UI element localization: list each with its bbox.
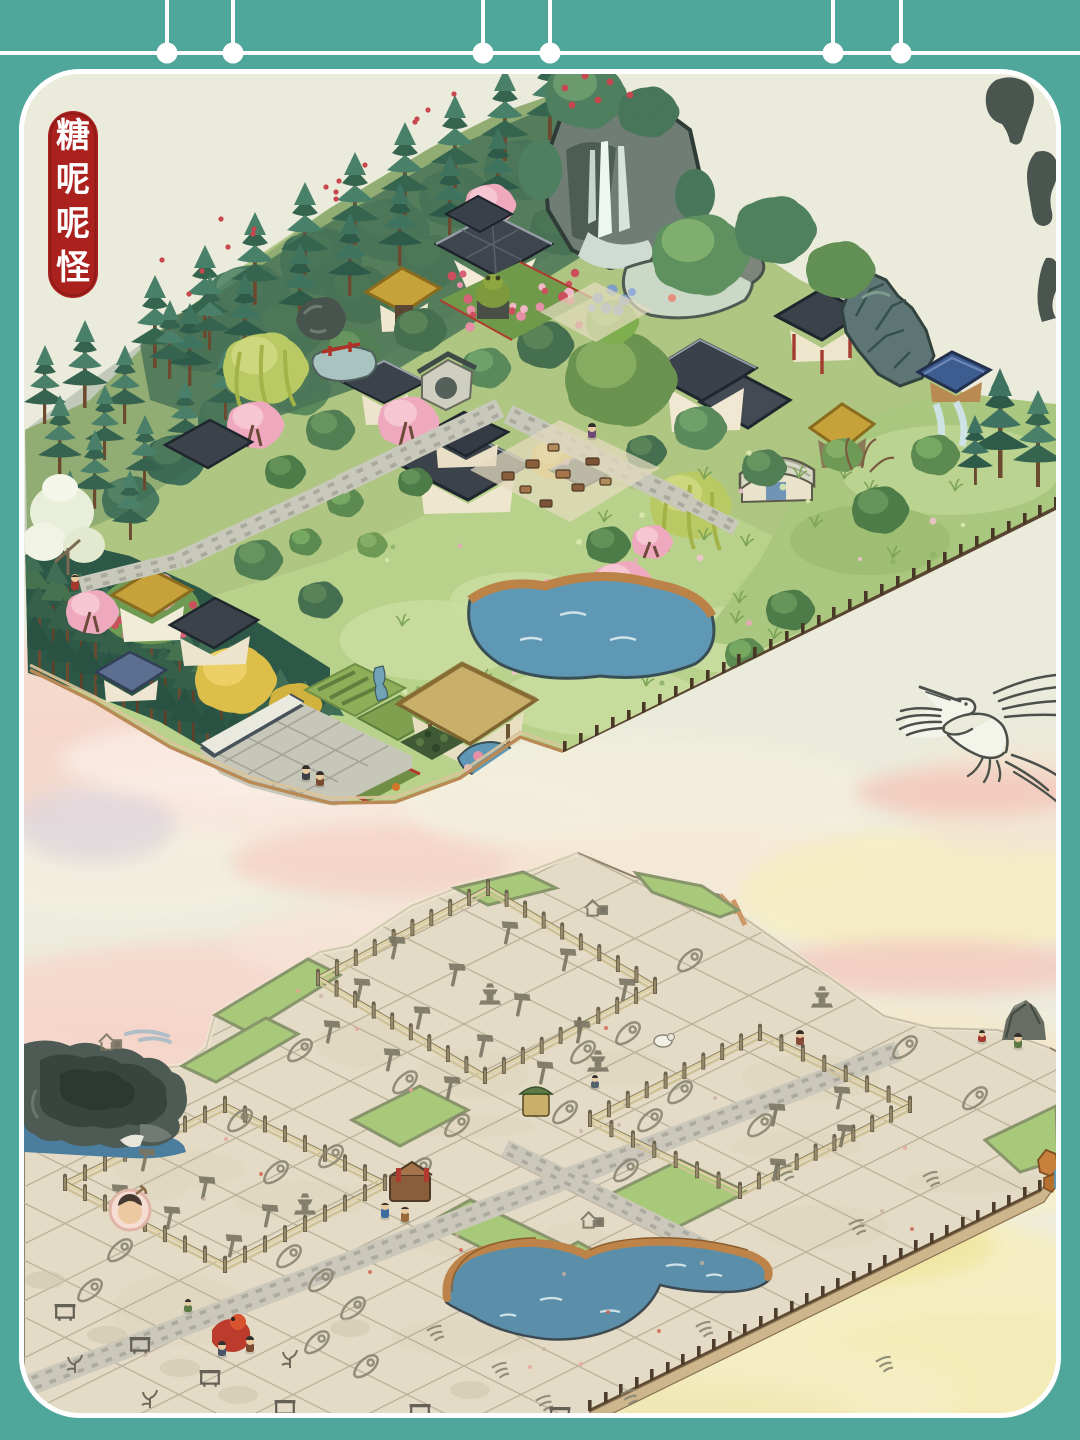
svg-text:呢: 呢 — [56, 162, 90, 199]
svg-text:糖: 糖 — [56, 117, 90, 155]
svg-text:呢: 呢 — [56, 206, 90, 243]
svg-text:怪: 怪 — [56, 249, 91, 287]
